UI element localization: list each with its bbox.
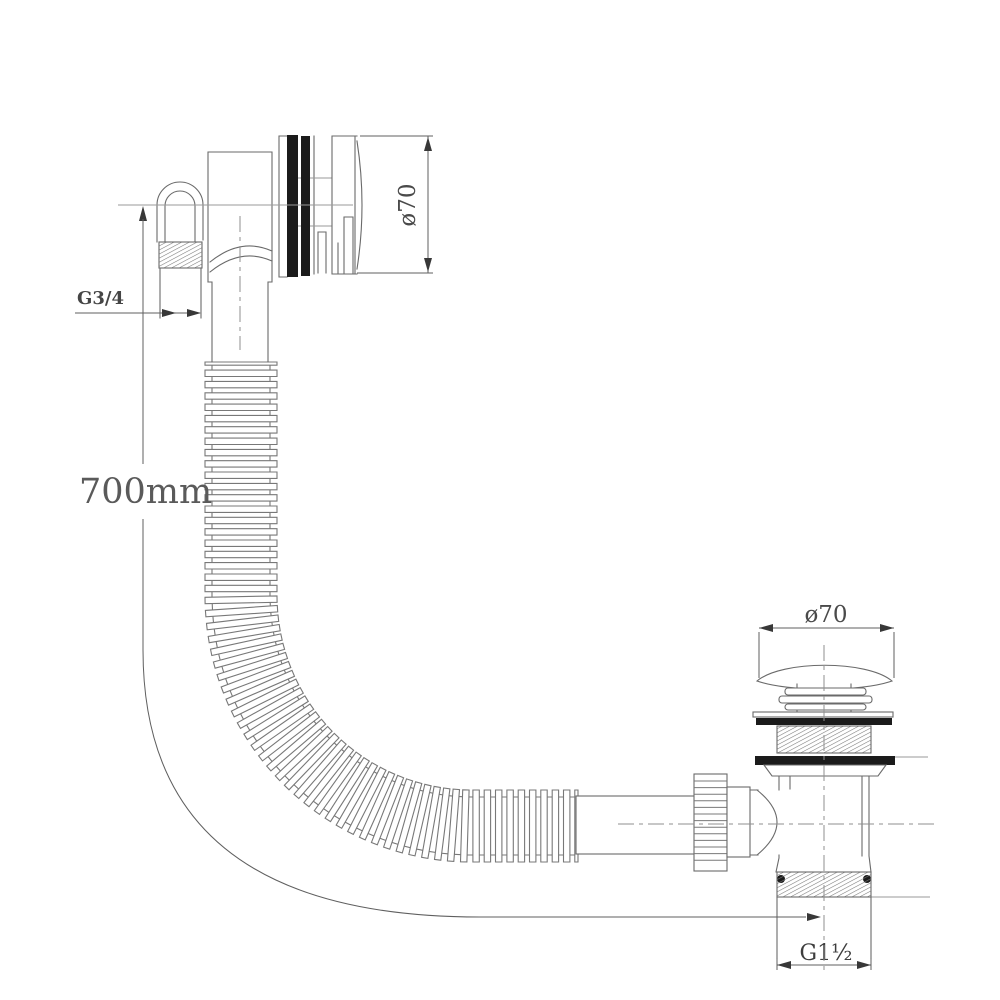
arrow-down — [424, 258, 432, 272]
arrow-1 — [162, 309, 176, 317]
arrow-left — [777, 961, 791, 969]
hose-nut — [694, 774, 727, 871]
overflow-cap-face — [357, 141, 362, 269]
waste-backnut — [764, 765, 886, 776]
overflow-washer-2 — [301, 136, 310, 276]
waste-thread-label: G1½ — [800, 941, 853, 966]
waste-cap-diameter-label: ø70 — [804, 602, 847, 628]
overflow-cap-slots — [318, 217, 353, 273]
hose-nut-collar — [727, 787, 750, 857]
arrow-up — [424, 137, 432, 151]
dimension-overflow-cap: ø70 — [357, 136, 433, 273]
arrow-left — [759, 624, 773, 632]
overflow-washer-1 — [287, 135, 298, 277]
waste-top-flange — [753, 712, 893, 717]
arrow-2 — [187, 309, 201, 317]
overflow-saddle-arcs — [210, 246, 272, 272]
arrow-right — [807, 913, 821, 921]
overflow-thread-label: G3/4 — [77, 288, 124, 309]
arrow-right — [880, 624, 894, 632]
waste-plate-3 — [785, 704, 866, 710]
hose-length-label: 700mm — [79, 472, 212, 512]
dimension-waste-cap: ø70 — [759, 602, 894, 678]
flexible-hose — [205, 362, 696, 862]
overflow-assembly — [157, 135, 362, 362]
waste-plate-1 — [785, 688, 866, 695]
side-port-walls — [750, 790, 758, 855]
bath-waste-overflow-drawing: 700mm G3/4 ø70 ø70 G1½ — [0, 0, 1000, 1000]
overflow-cap-diameter-label: ø70 — [395, 183, 421, 226]
arrow-up — [139, 206, 147, 221]
waste-assembly — [694, 665, 930, 958]
arrow-right — [857, 961, 871, 969]
technical-drawing-page: 700mm G3/4 ø70 ø70 G1½ — [0, 0, 1000, 1000]
waste-plate-2 — [779, 696, 872, 703]
hose-tail-tube — [576, 796, 696, 854]
waste-gasket — [755, 756, 895, 765]
overflow-thread-section — [159, 242, 202, 268]
dimension-overflow-thread: G3/4 — [75, 288, 201, 317]
side-port-end-arc — [757, 790, 777, 855]
overflow-body-flange — [279, 136, 287, 277]
overflow-elbow-inner — [165, 191, 195, 242]
hose-corrugations — [205, 362, 578, 862]
